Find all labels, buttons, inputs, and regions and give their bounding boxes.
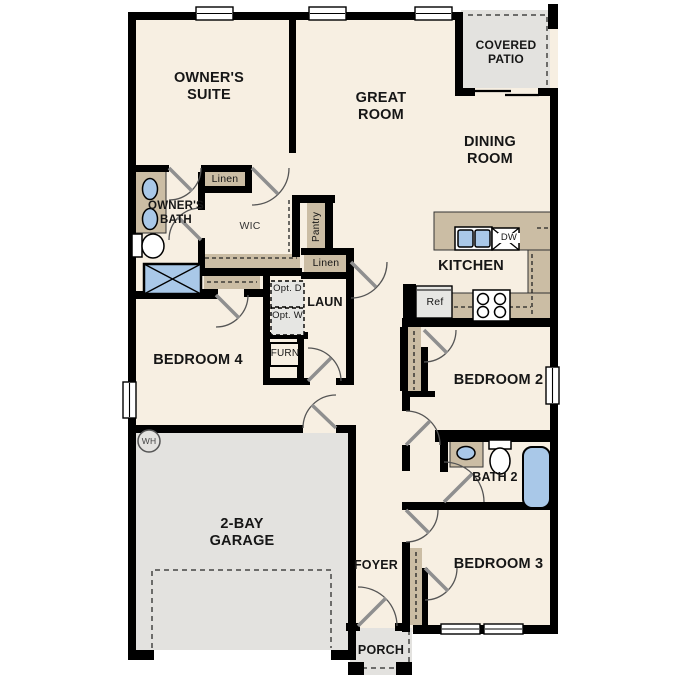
porch-label: PORCH bbox=[349, 643, 413, 658]
bath2-sink bbox=[457, 447, 475, 460]
bath2-label: BATH 2 bbox=[470, 470, 520, 485]
owners-toilet-bowl bbox=[142, 234, 164, 258]
owners-suite-label: OWNER'S SUITE bbox=[159, 70, 259, 104]
wic-shelf bbox=[202, 254, 300, 269]
kitchen-label: KITCHEN bbox=[421, 258, 521, 275]
bedroom4-label: BEDROOM 4 bbox=[143, 352, 253, 369]
kitchen-sink bbox=[455, 227, 492, 250]
covered-patio-label: COVERED PATIO bbox=[466, 38, 546, 66]
floor-plan: OWNER'S SUITE GREAT ROOM COVERED PATIO D… bbox=[0, 0, 687, 687]
bedroom2-label: BEDROOM 2 bbox=[441, 372, 556, 389]
floor-plan-drawing bbox=[0, 0, 687, 687]
floor-areas bbox=[128, 10, 558, 675]
refrigerator-label: Ref bbox=[423, 296, 447, 308]
pantry-label: Pantry bbox=[311, 204, 323, 250]
water-heater-label: WH bbox=[140, 436, 158, 446]
wic-label: WIC bbox=[228, 220, 272, 232]
opt-washer-label: Opt. W bbox=[271, 311, 304, 321]
dishwasher-label: DW bbox=[498, 233, 520, 243]
bedroom3-label: BEDROOM 3 bbox=[441, 556, 556, 573]
owners-shower bbox=[144, 264, 201, 294]
linen1-label: Linen bbox=[204, 173, 246, 185]
linen2-label: Linen bbox=[305, 257, 347, 269]
stove bbox=[473, 290, 510, 321]
garage-label: 2-BAY GARAGE bbox=[202, 516, 282, 550]
owners-toilet-tank bbox=[132, 234, 142, 257]
owners-bath-sink-1 bbox=[143, 179, 158, 200]
laundry-label: LAUN bbox=[302, 295, 348, 310]
owners-bath-label: OWNER'S BATH bbox=[136, 200, 216, 227]
furnace-label: FURN bbox=[270, 348, 300, 360]
foyer-label: FOYER bbox=[344, 558, 408, 573]
bath2-tub bbox=[523, 447, 550, 508]
opt-dryer-label: Opt. D bbox=[271, 284, 304, 294]
dining-room-label: DINING ROOM bbox=[454, 134, 526, 168]
great-room-label: GREAT ROOM bbox=[345, 90, 417, 124]
